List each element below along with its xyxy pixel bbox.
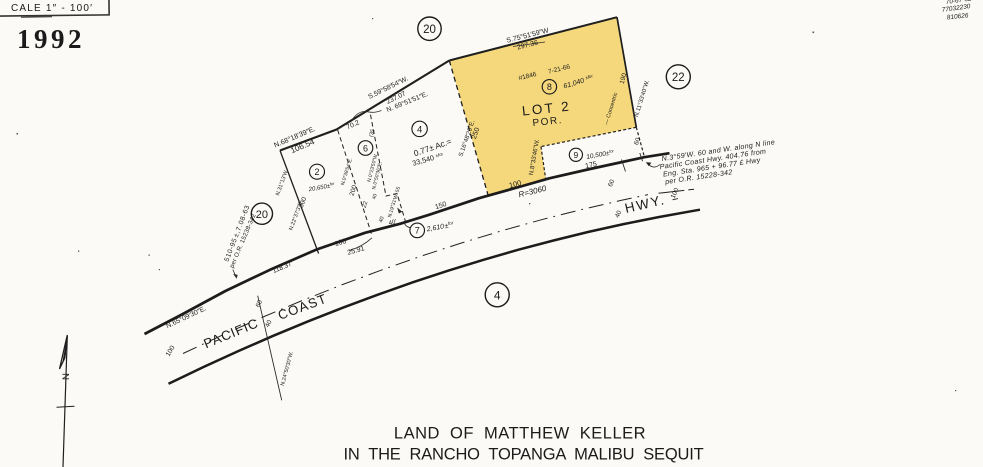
svg-text:20: 20 — [423, 24, 436, 36]
svg-text:7: 7 — [415, 226, 420, 236]
svg-text:8: 8 — [547, 82, 552, 92]
svg-text:9: 9 — [574, 150, 579, 160]
svg-text:4: 4 — [494, 288, 501, 302]
svg-text:2: 2 — [314, 167, 319, 177]
svg-text:1992: 1992 — [17, 24, 85, 54]
svg-text:LAND OF MATTHEW KELLER: LAND OF MATTHEW KELLER — [394, 425, 646, 443]
svg-text:N: N — [61, 373, 72, 380]
svg-text:CALE 1″ ‑ 100′: CALE 1″ ‑ 100′ — [11, 3, 93, 14]
svg-text:22: 22 — [672, 72, 685, 84]
svg-text:6: 6 — [363, 143, 368, 153]
svg-text:4: 4 — [417, 124, 422, 135]
svg-text:20: 20 — [256, 209, 268, 221]
svg-text:IN THE RANCHO TOPANGA MALIBU S: IN THE RANCHO TOPANGA MALIBU SEQUIT — [344, 446, 704, 464]
